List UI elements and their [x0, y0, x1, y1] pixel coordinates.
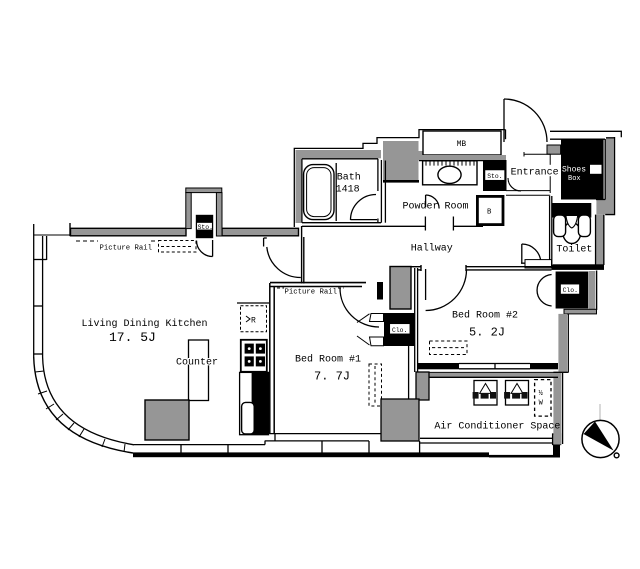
svg-text:Bed Room #2: Bed Room #2 — [452, 309, 518, 321]
svg-text:W: W — [539, 400, 544, 408]
svg-text:Powder Room: Powder Room — [403, 200, 469, 212]
svg-text:Hallway: Hallway — [411, 242, 453, 254]
svg-text:Box: Box — [568, 175, 581, 183]
svg-text:17. 5J: 17. 5J — [109, 330, 156, 345]
svg-text:Toilet: Toilet — [556, 243, 592, 255]
svg-text:B: B — [487, 208, 492, 216]
svg-text:5. 2J: 5. 2J — [469, 325, 505, 339]
svg-text:Entrance: Entrance — [511, 167, 559, 178]
svg-text:Shoes: Shoes — [562, 166, 586, 175]
svg-text:Air Conditioner Space: Air Conditioner Space — [434, 420, 560, 432]
svg-text:Sto.: Sto. — [198, 224, 213, 231]
svg-text:R: R — [251, 317, 256, 326]
svg-text:7. 7J: 7. 7J — [314, 370, 350, 384]
svg-text:Bed Room #1: Bed Room #1 — [295, 354, 361, 366]
svg-text:Sto.: Sto. — [487, 173, 502, 180]
svg-text:Clo.: Clo. — [563, 287, 578, 294]
svg-text:Picture Rail: Picture Rail — [100, 244, 153, 252]
svg-text:1418: 1418 — [336, 184, 360, 195]
svg-text:Clo.: Clo. — [392, 327, 407, 334]
svg-text:Picture Rail: Picture Rail — [285, 289, 338, 297]
svg-text:Living Dining Kitchen: Living Dining Kitchen — [82, 318, 208, 330]
svg-text:Counter: Counter — [176, 357, 218, 368]
svg-text:½: ½ — [539, 389, 544, 398]
svg-text:Bath: Bath — [337, 171, 361, 183]
svg-text:MB: MB — [457, 140, 467, 149]
